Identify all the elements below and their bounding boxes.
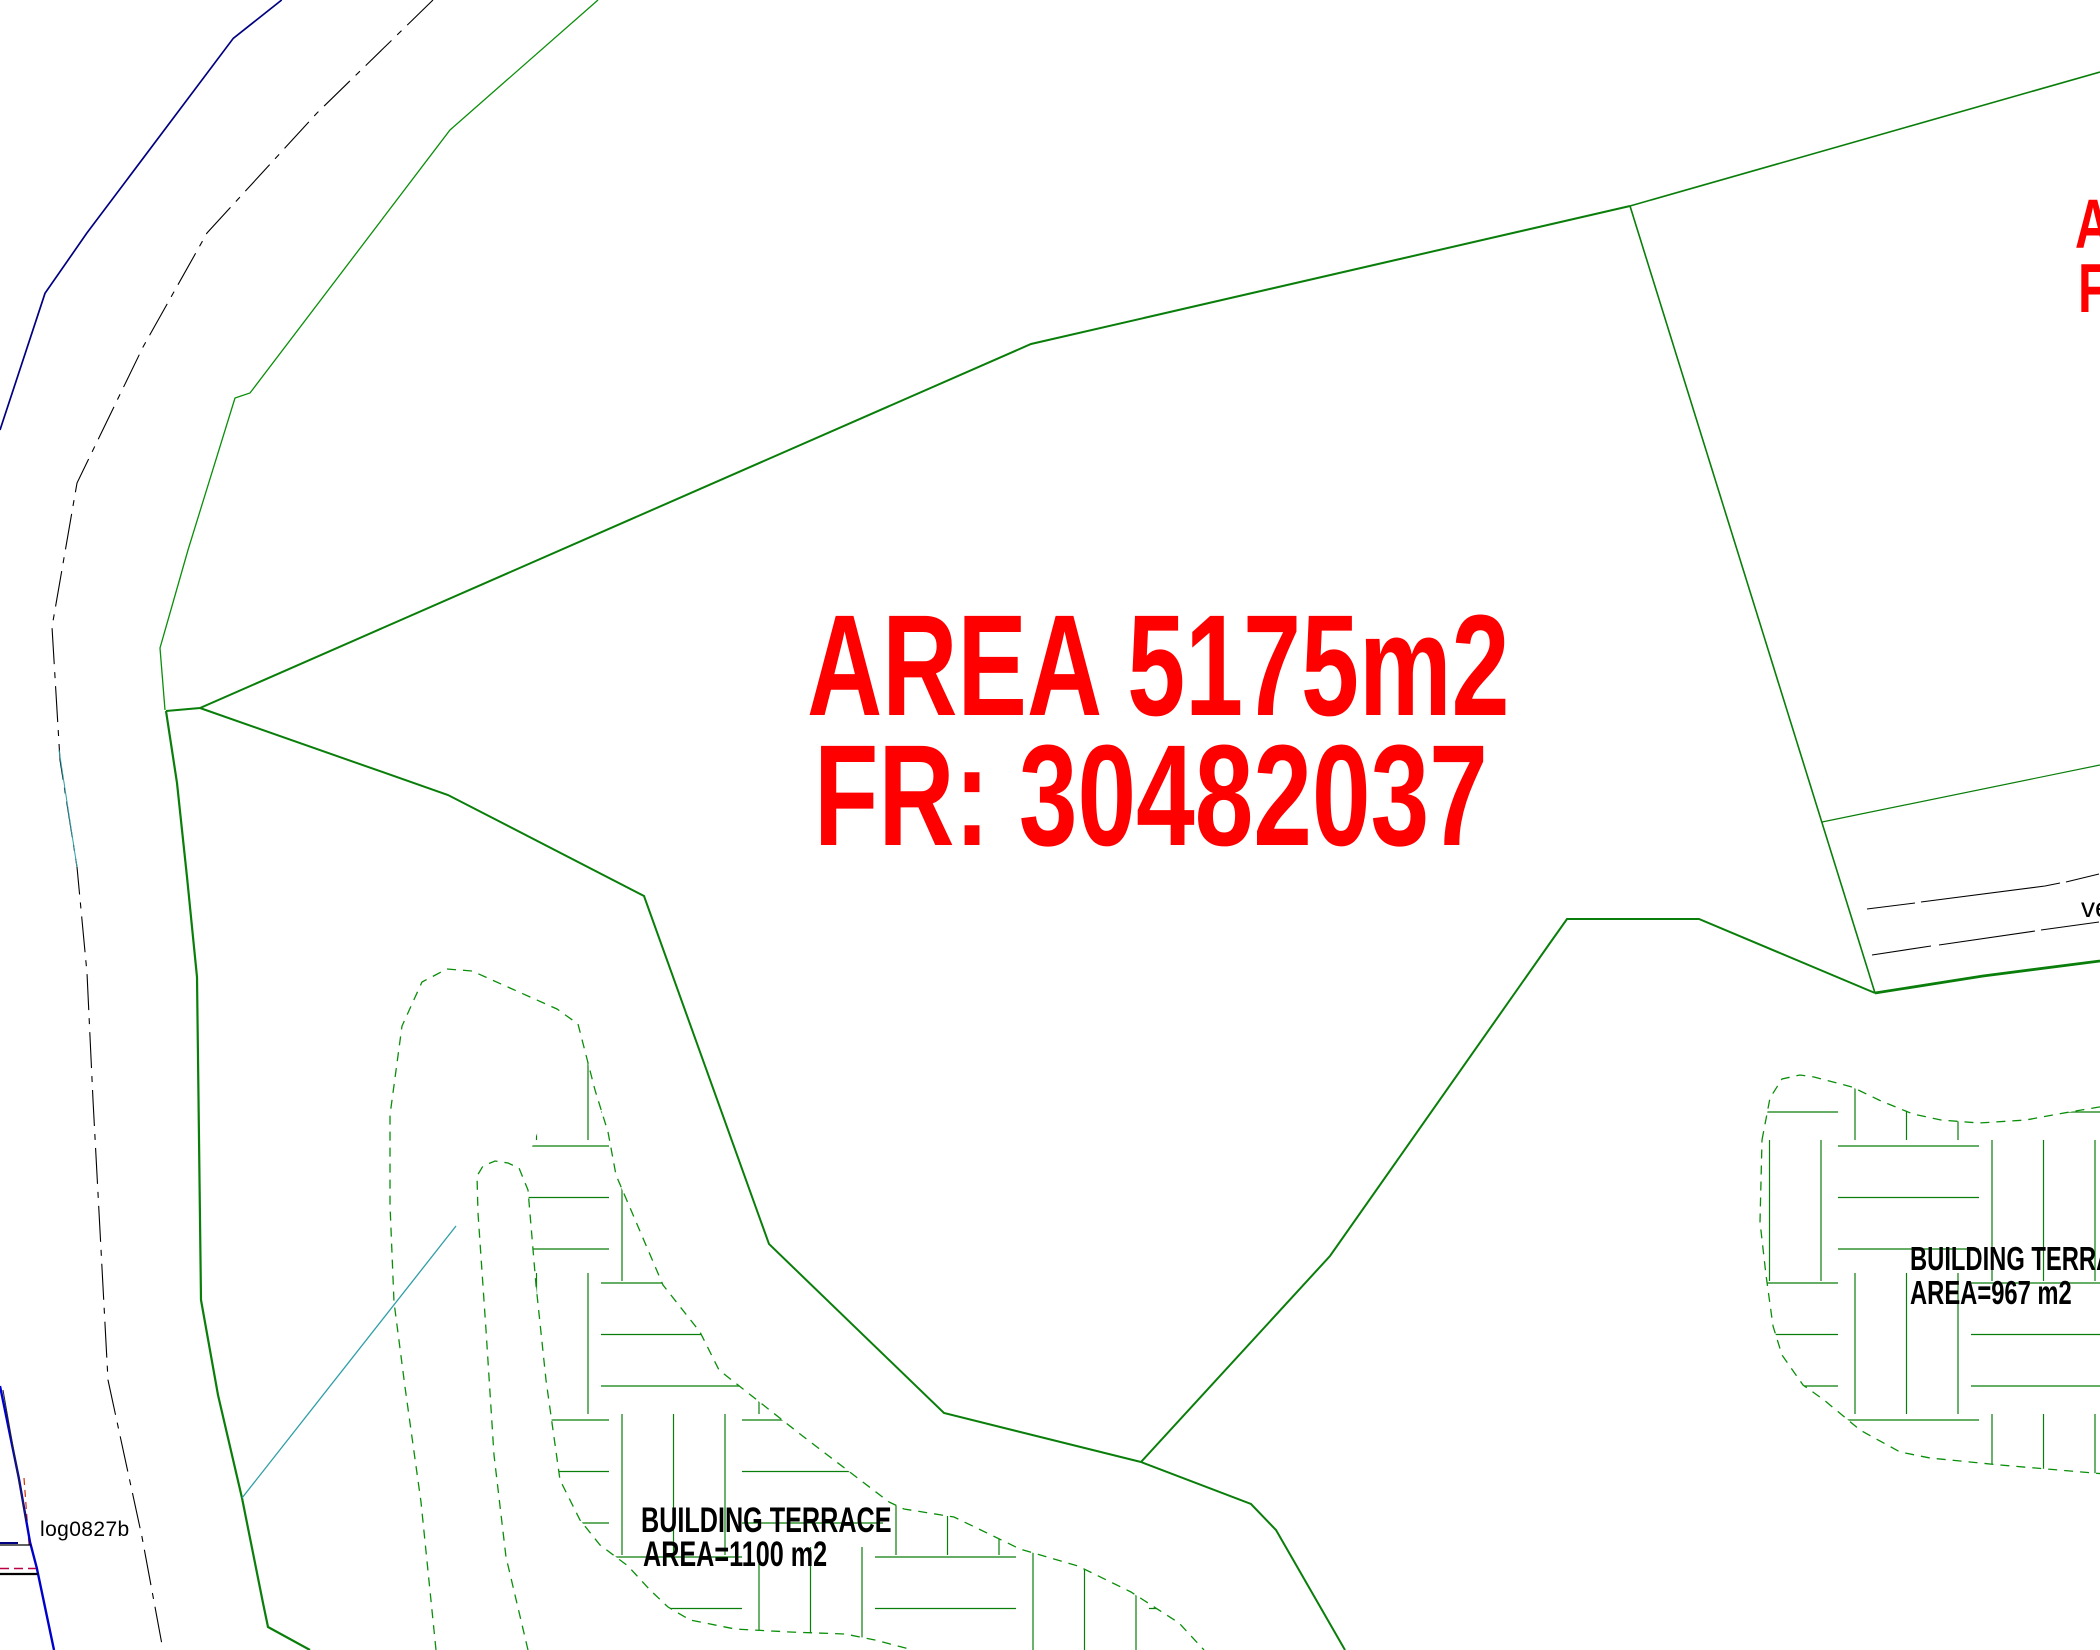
- svg-text:log0827b: log0827b: [40, 1518, 130, 1541]
- svg-text:FR: 30482036: FR: 30482036: [2078, 249, 2100, 327]
- svg-text:AREA=1100 m2: AREA=1100 m2: [643, 1535, 827, 1574]
- svg-text:ve: ve: [2081, 892, 2100, 923]
- svg-text:BUILDING TERRACE: BUILDING TERRACE: [1910, 1241, 2100, 1278]
- svg-text:FR: 30482037: FR: 30482037: [814, 715, 1488, 876]
- svg-text:AREA=967 m2: AREA=967 m2: [1910, 1275, 2072, 1312]
